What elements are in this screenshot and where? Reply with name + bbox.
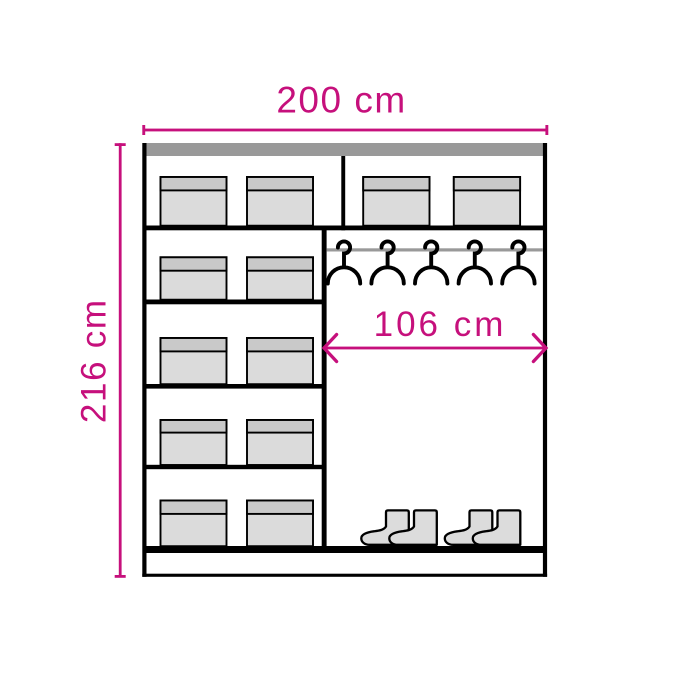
svg-text:216 cm: 216 cm [75, 298, 114, 423]
svg-text:200 cm: 200 cm [276, 80, 406, 121]
svg-text:106 cm: 106 cm [374, 305, 507, 344]
